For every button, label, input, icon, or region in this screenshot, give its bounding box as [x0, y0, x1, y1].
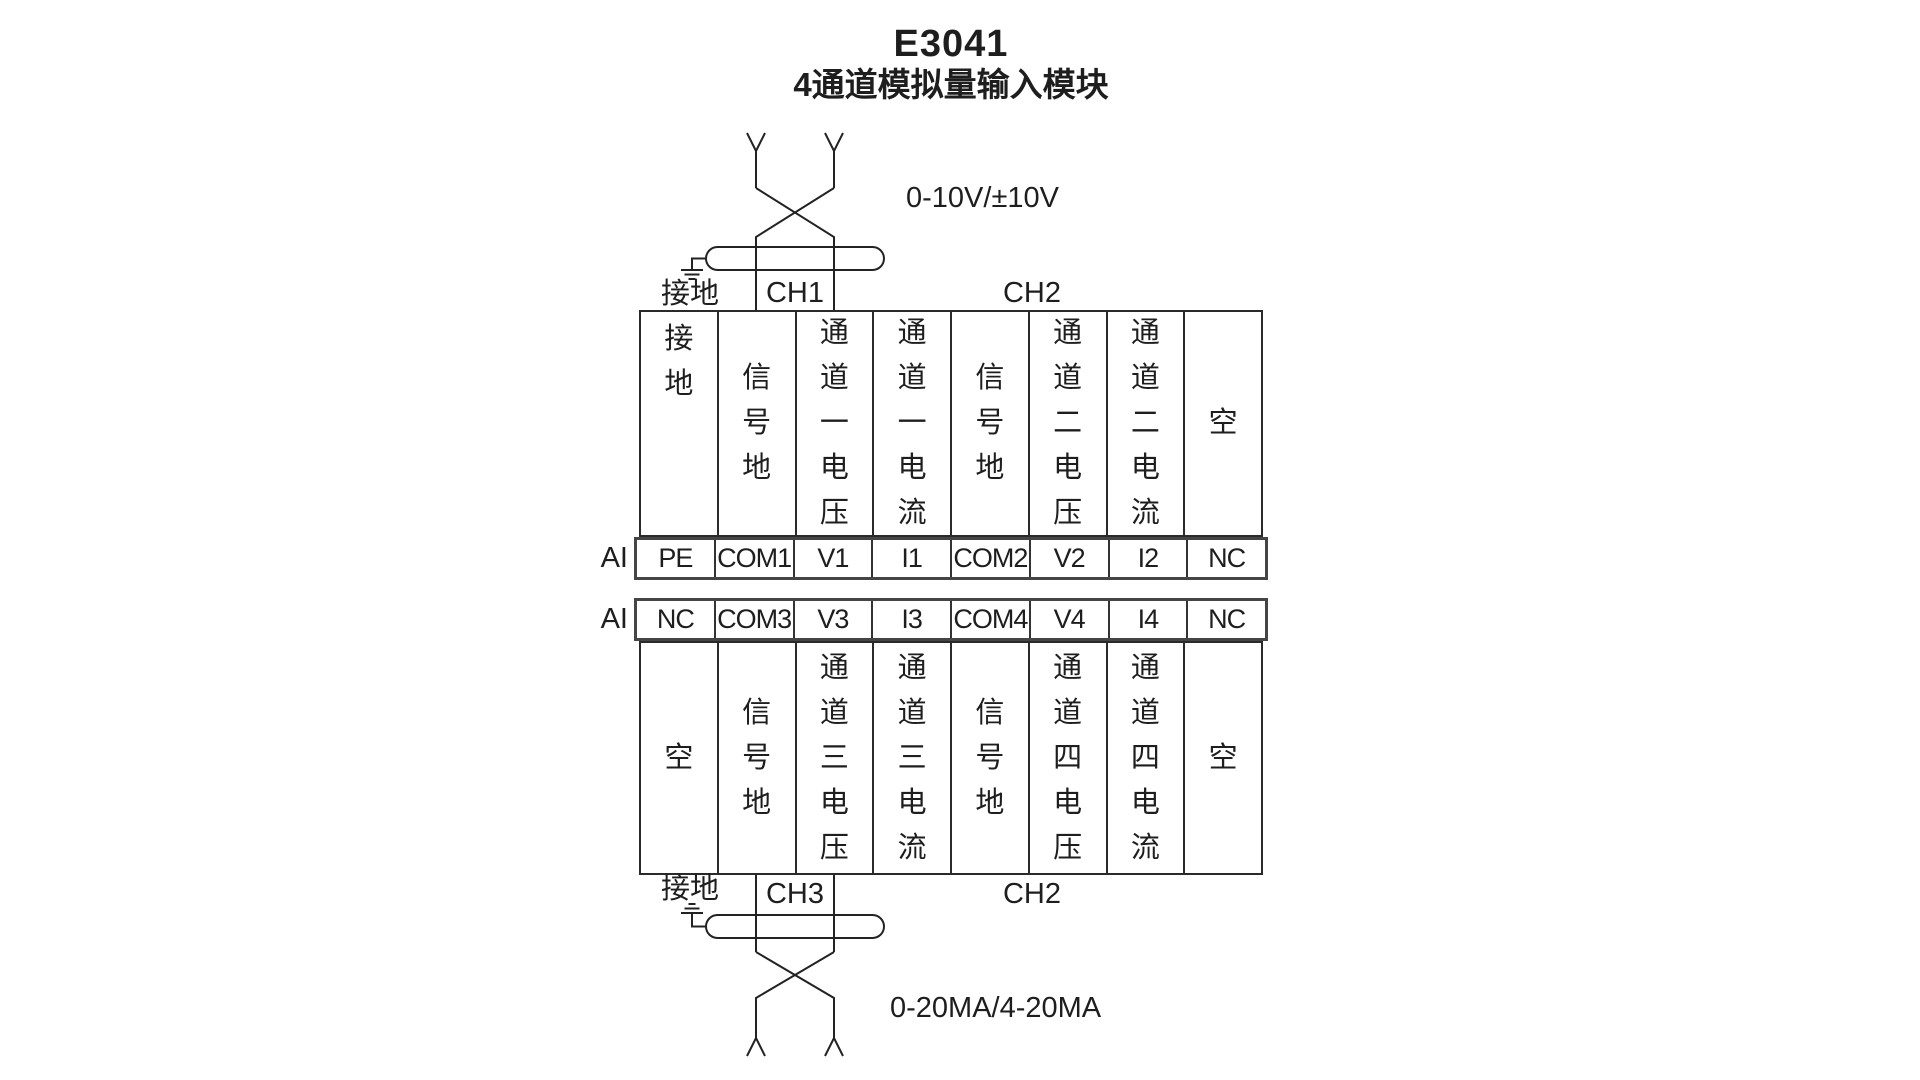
function-cell: 信号地 — [952, 312, 1030, 535]
function-label: 通道二电压 — [1051, 312, 1085, 535]
function-label: 信号地 — [740, 356, 774, 491]
function-cell: 信号地 — [719, 312, 797, 535]
bottom-channel-left-label: CH3 — [766, 879, 824, 909]
function-cell: 通道一电流 — [874, 312, 952, 535]
cable-shield-icon — [706, 915, 884, 938]
terminal-cell: V1 — [795, 540, 874, 577]
top-ground-label: 接地 — [661, 279, 719, 309]
function-label: 信号地 — [973, 691, 1007, 826]
function-label: 空 — [1206, 401, 1240, 446]
top-channel-right-label: CH2 — [1003, 278, 1061, 308]
function-label: 空 — [662, 736, 696, 781]
wire-fork-terminal — [825, 133, 843, 188]
function-label: 通道三电流 — [895, 646, 929, 871]
bottom-channel-right-label: CH2 — [1003, 879, 1061, 909]
terminal-cell: V3 — [795, 601, 874, 638]
function-label: 通道四电流 — [1128, 646, 1162, 871]
function-cell: 通道二电压 — [1030, 312, 1108, 535]
function-label: 信号地 — [740, 691, 774, 826]
ground-icon — [681, 904, 706, 927]
wiring-diagram-canvas: E3041 4通道模拟量输入模块 0-10V/±10V 接地 CH1 CH2 接… — [0, 0, 1920, 1080]
wire-fork-terminal — [747, 1038, 765, 1056]
function-cell: 信号地 — [719, 643, 797, 873]
function-cell: 接地 — [641, 312, 719, 535]
terminal-row-top: PE COM1 V1 I1 COM2 V2 I2 NC — [634, 537, 1268, 580]
crossed-wires — [756, 952, 834, 1038]
function-label: 通道一电压 — [817, 312, 851, 535]
terminal-cell: I1 — [873, 540, 952, 577]
function-table-bottom: 空 信号地 通道三电压 通道三电流 信号地 通道四电压 通道四电流 空 — [639, 641, 1263, 875]
function-cell: 通道四电压 — [1030, 643, 1108, 873]
function-label: 通道二电流 — [1128, 312, 1162, 535]
function-label: 接地 — [662, 312, 696, 407]
function-cell: 信号地 — [952, 643, 1030, 873]
function-table-top: 接地 信号地 通道一电压 通道一电流 信号地 通道二电压 通道二电流 空 — [639, 310, 1263, 537]
terminal-cell: NC — [637, 601, 716, 638]
terminal-cell: COM2 — [952, 540, 1031, 577]
bottom-ground-label: 接地 — [661, 874, 719, 904]
terminal-cell: PE — [637, 540, 716, 577]
row-label-ai-bottom: AI — [558, 604, 628, 634]
function-cell: 通道四电流 — [1108, 643, 1186, 873]
function-label: 空 — [1206, 736, 1240, 781]
function-cell: 通道二电流 — [1108, 312, 1186, 535]
terminal-cell: NC — [1188, 601, 1265, 638]
module-name: 4通道模拟量输入模块 — [551, 66, 1351, 104]
title-block: E3041 4通道模拟量输入模块 — [551, 24, 1351, 104]
cable-shield-icon — [706, 247, 884, 270]
terminal-cell: V2 — [1031, 540, 1110, 577]
wire-fork-terminal — [825, 1038, 843, 1056]
module-model-number: E3041 — [551, 24, 1351, 64]
wire-fork-terminal — [747, 133, 765, 188]
function-label: 信号地 — [973, 356, 1007, 491]
terminal-cell: NC — [1188, 540, 1265, 577]
top-channel-left-label: CH1 — [766, 278, 824, 308]
bottom-signal-range-label: 0-20MA/4-20MA — [890, 993, 1101, 1023]
terminal-cell: COM3 — [716, 601, 795, 638]
terminal-cell: COM4 — [952, 601, 1031, 638]
function-cell: 空 — [641, 643, 719, 873]
function-label: 通道一电流 — [895, 312, 929, 535]
terminal-cell: I2 — [1110, 540, 1189, 577]
function-label: 通道四电压 — [1051, 646, 1085, 871]
row-label-ai-top: AI — [558, 543, 628, 573]
terminal-cell: I4 — [1110, 601, 1189, 638]
function-cell: 空 — [1185, 312, 1261, 535]
function-cell: 通道三电压 — [797, 643, 875, 873]
terminal-cell: I3 — [873, 601, 952, 638]
function-cell: 通道一电压 — [797, 312, 875, 535]
terminal-cell: COM1 — [716, 540, 795, 577]
top-signal-range-label: 0-10V/±10V — [906, 183, 1059, 213]
function-cell: 通道三电流 — [874, 643, 952, 873]
terminal-cell: V4 — [1031, 601, 1110, 638]
terminal-row-bottom: NC COM3 V3 I3 COM4 V4 I4 NC — [634, 598, 1268, 641]
function-cell: 空 — [1185, 643, 1261, 873]
function-label: 通道三电压 — [817, 646, 851, 871]
ground-icon — [681, 259, 706, 280]
